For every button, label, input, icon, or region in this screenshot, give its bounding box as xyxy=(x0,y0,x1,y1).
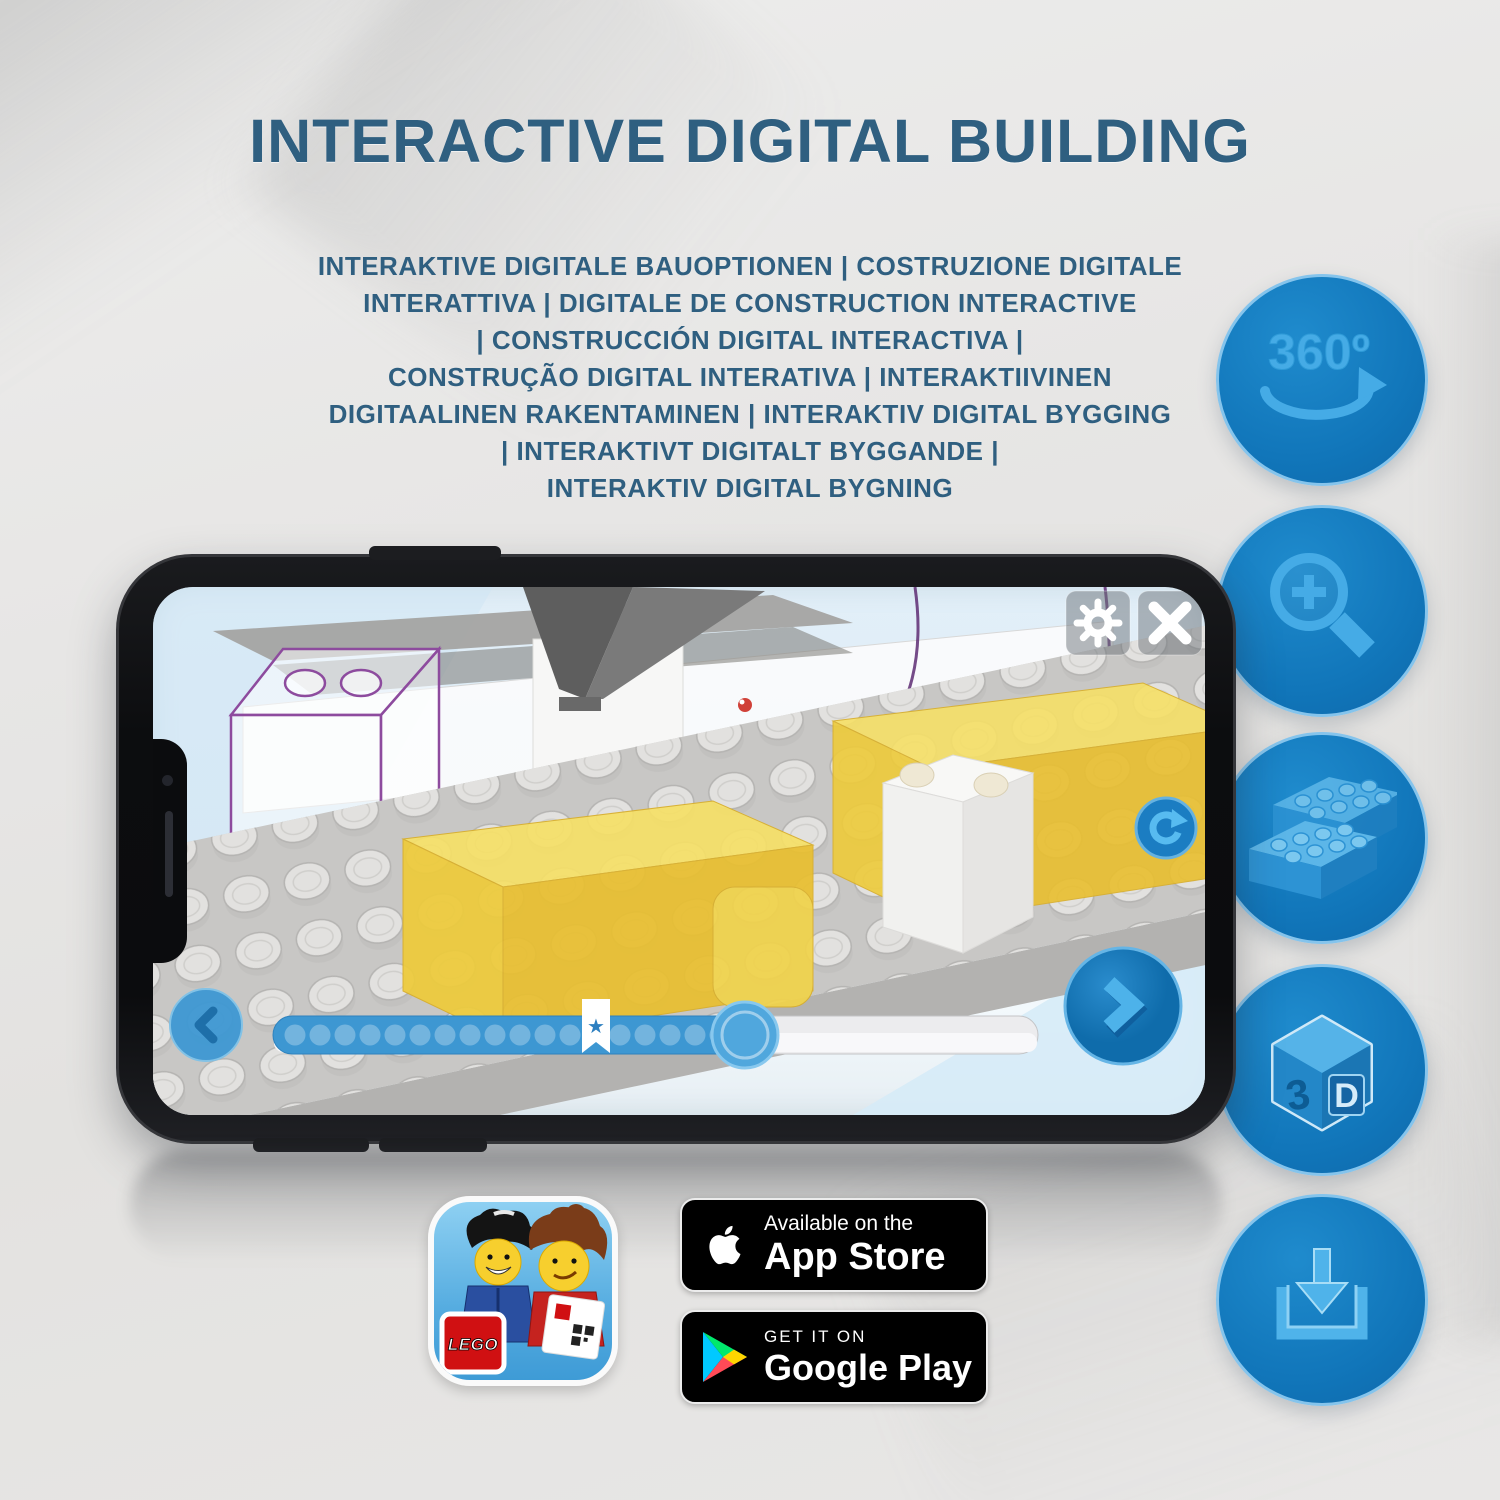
page-background: INTERACTIVE DIGITAL BUILDING INTERAKTIVE… xyxy=(0,0,1500,1500)
app-store-tagline: Available on the xyxy=(764,1213,946,1235)
google-play-icon xyxy=(703,1332,747,1382)
background-streak xyxy=(1430,240,1500,1340)
page-title: INTERACTIVE DIGITAL BUILDING xyxy=(0,106,1500,176)
lego-app-icon[interactable]: LEGO xyxy=(428,1196,618,1386)
cube-d-label: D xyxy=(1334,1077,1359,1115)
subtitle-line: INTERAKTIVE DIGITALE BAUOPTIONEN | COSTR… xyxy=(220,248,1280,285)
subtitle-line: INTERAKTIV DIGITAL BYGNING xyxy=(220,470,1280,507)
next-step-button[interactable] xyxy=(1065,948,1181,1064)
zoom-in-icon xyxy=(1247,536,1397,686)
google-play-name: Google Play xyxy=(764,1349,972,1387)
3d-cube-icon: 3 D xyxy=(1247,995,1397,1145)
app-store-name: App Store xyxy=(764,1238,946,1278)
close-button[interactable] xyxy=(1138,591,1202,655)
download-icon xyxy=(1247,1225,1397,1375)
feature-badge-zoom xyxy=(1216,505,1428,717)
app-store-badge[interactable]: Available on the App Store xyxy=(680,1198,988,1292)
lego-logo: LEGO xyxy=(442,1314,504,1372)
minifig-detail xyxy=(738,698,752,712)
feature-badge-download xyxy=(1216,1194,1428,1406)
lego-brick-icon xyxy=(1247,763,1397,913)
settings-button[interactable] xyxy=(1066,591,1130,655)
speaker-slot xyxy=(165,811,173,897)
camera-icon xyxy=(162,775,173,786)
phone-notch xyxy=(153,739,187,963)
phone-device: ★ xyxy=(116,554,1236,1144)
rotate-360-icon: 360º xyxy=(1247,305,1397,455)
phone-reflection xyxy=(130,1150,1222,1262)
feature-badge-bricks xyxy=(1216,732,1428,944)
apple-icon xyxy=(702,1218,748,1272)
lego-logo-text: LEGO xyxy=(448,1335,498,1354)
feature-badge-3d: 3 D xyxy=(1216,964,1428,1176)
slider-handle[interactable] xyxy=(712,1002,778,1068)
google-play-badge[interactable]: GET IT ON Google Play xyxy=(680,1310,988,1404)
lego-app-artwork: LEGO xyxy=(434,1202,612,1380)
lego-3d-scene: ★ xyxy=(153,587,1205,1115)
subtitle-block: INTERAKTIVE DIGITALE BAUOPTIONEN | COSTR… xyxy=(220,248,1280,507)
subtitle-line: | CONSTRUCCIÓN DIGITAL INTERACTIVA | xyxy=(220,322,1280,359)
subtitle-line: CONSTRUÇÃO DIGITAL INTERATIVA | INTERAKT… xyxy=(220,359,1280,396)
white-brick-pillar xyxy=(883,755,1033,953)
reset-view-button[interactable] xyxy=(1136,798,1196,858)
phone-screen: ★ xyxy=(153,587,1205,1115)
feature-badge-360: 360º xyxy=(1216,274,1428,486)
previous-step-button[interactable] xyxy=(170,989,242,1061)
rotate-360-label: 360º xyxy=(1268,324,1370,380)
subtitle-line: DIGITAALINEN RAKENTAMINEN | INTERAKTIV D… xyxy=(220,396,1280,433)
svg-text:★: ★ xyxy=(587,1016,605,1038)
subtitle-line: INTERATTIVA | DIGITALE DE CONSTRUCTION I… xyxy=(220,285,1280,322)
google-play-tagline: GET IT ON xyxy=(764,1328,972,1346)
girl-minifig xyxy=(528,1204,607,1360)
subtitle-line: | INTERAKTIVT DIGITALT BYGGANDE | xyxy=(220,433,1280,470)
instruction-card xyxy=(542,1294,606,1359)
phone-side-button xyxy=(369,546,501,560)
